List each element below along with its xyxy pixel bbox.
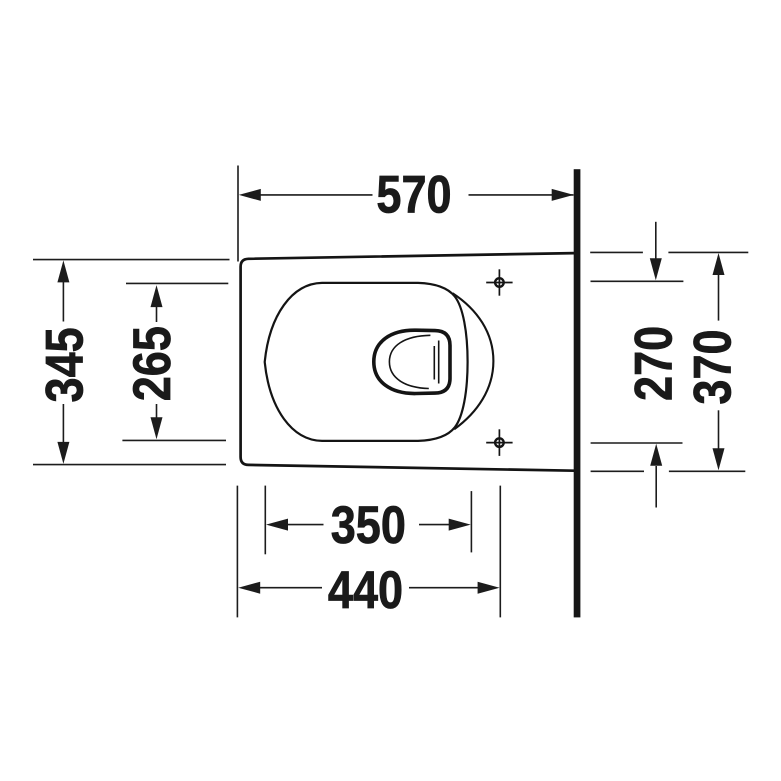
svg-text:350: 350 — [331, 495, 406, 554]
svg-text:440: 440 — [328, 560, 403, 619]
svg-text:265: 265 — [122, 326, 181, 401]
svg-text:370: 370 — [683, 329, 742, 404]
svg-text:345: 345 — [35, 327, 94, 402]
svg-text:570: 570 — [376, 165, 451, 224]
svg-text:270: 270 — [624, 326, 683, 401]
